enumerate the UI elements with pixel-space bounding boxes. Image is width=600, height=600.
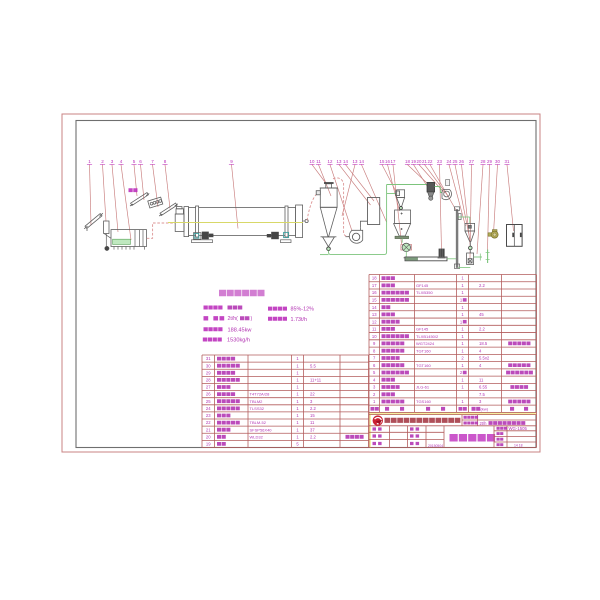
svg-text:28: 28: [481, 159, 486, 164]
svg-text:20150504: 20150504: [428, 444, 443, 448]
svg-text:2t/h: 2t/h: [480, 421, 488, 426]
svg-text:22: 22: [206, 420, 211, 425]
svg-text:14: 14: [343, 159, 348, 164]
svg-text:13: 13: [372, 312, 377, 317]
svg-text:3: 3: [111, 159, 114, 164]
svg-text:31: 31: [206, 356, 211, 361]
svg-text:2: 2: [101, 159, 104, 164]
svg-text:25: 25: [453, 159, 458, 164]
svg-text:11: 11: [372, 327, 377, 332]
svg-text:(kw): (kw): [481, 406, 489, 411]
svg-text:14: 14: [372, 305, 377, 310]
svg-text:13: 13: [353, 159, 358, 164]
svg-text:45: 45: [479, 312, 484, 317]
svg-text:23: 23: [437, 159, 442, 164]
svg-text:18.5: 18.5: [479, 341, 488, 346]
svg-text:6.55: 6.55: [479, 385, 488, 390]
svg-text:37: 37: [310, 427, 315, 432]
svg-text:2t/h(: 2t/h(: [228, 316, 239, 322]
svg-text:27: 27: [206, 385, 211, 390]
svg-text:29: 29: [487, 159, 492, 164]
svg-text:13: 13: [337, 159, 342, 164]
svg-text:4: 4: [120, 159, 123, 164]
svg-text:24: 24: [447, 159, 452, 164]
svg-text:9: 9: [230, 159, 233, 164]
svg-text:10: 10: [372, 334, 377, 339]
svg-text:16: 16: [372, 290, 377, 295]
svg-text:2.2: 2.2: [479, 327, 485, 332]
svg-text:12: 12: [328, 159, 333, 164]
svg-text:14 18: 14 18: [514, 443, 523, 447]
svg-text:30: 30: [495, 159, 500, 164]
svg-text:SFSP56X40: SFSP56X40: [250, 427, 273, 432]
svg-text:TGT160: TGT160: [416, 363, 431, 368]
svg-text:6: 6: [139, 159, 142, 164]
svg-text:18: 18: [372, 276, 377, 281]
svg-text:15: 15: [310, 413, 315, 418]
svg-text:31: 31: [505, 159, 510, 164]
svg-text:2.2: 2.2: [310, 406, 316, 411]
svg-text:7: 7: [151, 159, 154, 164]
svg-text:TGT160: TGT160: [416, 348, 431, 353]
svg-text:25: 25: [206, 399, 211, 404]
svg-text:22: 22: [310, 392, 315, 397]
svg-text:1530kg/h: 1530kg/h: [227, 338, 250, 344]
svg-text:26: 26: [459, 159, 464, 164]
svg-text:15: 15: [372, 298, 377, 303]
svg-text:5.5: 5.5: [310, 363, 316, 368]
svg-text:): ): [251, 316, 253, 322]
svg-text:18: 18: [405, 159, 410, 164]
svg-text:11: 11: [316, 159, 321, 164]
svg-text:11: 11: [479, 377, 484, 382]
svg-text:28: 28: [206, 378, 211, 383]
svg-text:7.5: 7.5: [479, 392, 485, 397]
svg-text:27: 27: [469, 159, 474, 164]
svg-text:17: 17: [372, 283, 377, 288]
svg-text:T4T72A/28: T4T72A/28: [250, 392, 271, 397]
svg-text:188.45kw: 188.45kw: [228, 327, 253, 333]
svg-text:1: 1: [88, 159, 91, 164]
svg-text:10: 10: [310, 159, 315, 164]
svg-text:11+11: 11+11: [310, 378, 322, 383]
svg-text:2.2: 2.2: [310, 434, 316, 439]
svg-text:29: 29: [206, 370, 211, 375]
svg-text:19: 19: [206, 442, 211, 447]
svg-text:TLXB1450/2: TLXB1450/2: [416, 334, 439, 339]
svg-text:20: 20: [206, 434, 211, 439]
svg-text:22: 22: [428, 159, 433, 164]
svg-text:TBLM2: TBLM2: [250, 399, 264, 404]
svg-text:85%-12%: 85%-12%: [291, 307, 315, 313]
svg-text:12: 12: [372, 319, 377, 324]
svg-text:JLG-61: JLG-61: [416, 385, 430, 390]
svg-text:30: 30: [206, 363, 211, 368]
svg-text:TLSS32: TLSS32: [250, 406, 265, 411]
svg-text:11: 11: [310, 420, 315, 425]
svg-text:1.73t/h: 1.73t/h: [291, 317, 308, 323]
svg-text:GF145: GF145: [416, 327, 429, 332]
svg-text:TGS160: TGS160: [416, 399, 432, 404]
svg-text:GF145: GF145: [416, 283, 429, 288]
svg-text:21: 21: [206, 427, 211, 432]
svg-text:TBLM-52: TBLM-52: [250, 420, 267, 425]
svg-text:17: 17: [391, 159, 396, 164]
svg-text:5: 5: [133, 159, 136, 164]
svg-text:WLD32: WLD32: [250, 434, 264, 439]
svg-text:TLXB350: TLXB350: [416, 290, 433, 295]
svg-text:26: 26: [206, 392, 211, 397]
svg-text:2.2: 2.2: [479, 283, 485, 288]
svg-text:23: 23: [206, 413, 211, 418]
svg-text:24: 24: [206, 406, 211, 411]
svg-text:14: 14: [359, 159, 364, 164]
svg-text:5.5x2: 5.5x2: [479, 356, 490, 361]
svg-text:8: 8: [164, 159, 167, 164]
svg-text:WG-1505: WG-1505: [509, 426, 528, 431]
svg-text:WGT2424: WGT2424: [416, 341, 435, 346]
